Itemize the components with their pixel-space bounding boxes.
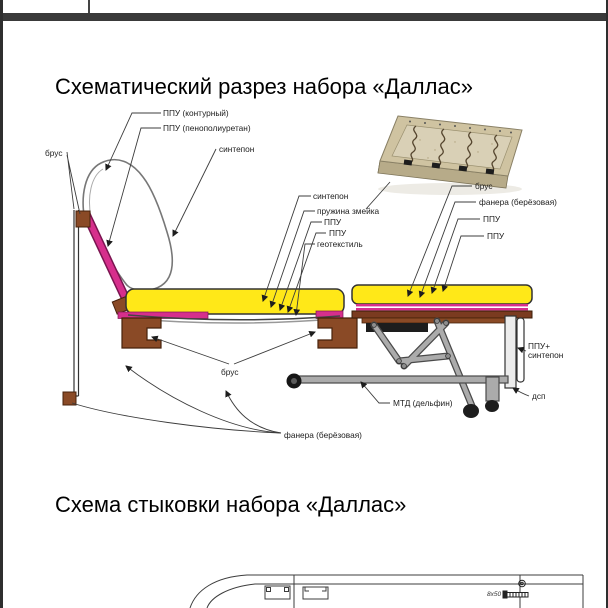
label-brus-top-left: брус — [45, 148, 62, 158]
leader-ppu-right-1 — [432, 219, 480, 293]
spring-frame-photo — [378, 116, 522, 195]
label-dsp: дсп — [532, 391, 545, 401]
leader-mtd — [361, 382, 390, 403]
joining-schema — [190, 575, 583, 608]
brus-block-panel-bottom — [63, 392, 76, 405]
label-brus-bottom: брус — [221, 367, 238, 377]
label-ppu-foam: ППУ (пенополиуретан) — [163, 123, 251, 133]
leader-fanera-arrow-2 — [126, 366, 281, 433]
leader-spring-to-photo — [366, 182, 390, 209]
screw-detail — [503, 580, 528, 598]
backrest-outline — [83, 160, 172, 290]
label-fanera-right: фанера (берёзовая) — [479, 197, 557, 207]
bracket-detail-2 — [303, 587, 328, 599]
label-ppu-right-2: ППУ — [487, 231, 505, 241]
leader-fanera-right — [420, 202, 476, 297]
leader-sintepon-top — [173, 149, 216, 236]
bracket-detail-1 — [265, 586, 290, 599]
label-brus-right: брус — [475, 181, 492, 191]
label-spring-snake: пружина змейка — [317, 206, 380, 216]
label-sintepon-mid: синтепон — [313, 191, 348, 201]
cutaway-diagram: ППУ (контурный) ППУ (пенополиуретан) син… — [0, 0, 608, 608]
mechanism-bottom-bar — [290, 376, 508, 383]
label-fanera-bottom: фанера (берёзовая) — [284, 430, 362, 440]
leader-brus-right — [408, 186, 472, 296]
label-sintepon-plus: синтепон — [528, 350, 563, 360]
seat-section — [118, 289, 357, 348]
label-mtd: МТД (дельфин) — [393, 398, 453, 408]
document-page: Схематический разрез набора «Даллас» Схе… — [0, 0, 608, 608]
leader-fanera-arrow-1 — [226, 391, 281, 433]
label-ppu-mid-1: ППУ — [324, 217, 342, 227]
label-ppu-right-1: ППУ — [483, 214, 501, 224]
label-screw-size: 8x50 — [487, 591, 501, 598]
leader-dsp — [513, 388, 529, 396]
label-geotextile: геотекстиль — [317, 239, 363, 249]
seat-foam — [126, 289, 344, 314]
label-sintepon-top: синтепон — [219, 144, 254, 154]
brus-block-board-top — [76, 211, 90, 227]
brus-bracket-left — [122, 318, 161, 348]
leader-brus-bottom-left — [152, 337, 229, 364]
brus-bracket-right — [318, 318, 357, 348]
label-ppu-mid-2: ППУ — [329, 228, 347, 238]
rear-foot — [486, 377, 499, 401]
rear-caster — [485, 400, 499, 412]
mechanism-links — [374, 321, 472, 406]
front-caster — [463, 404, 479, 418]
leader-brus-bottom-right — [234, 332, 315, 364]
leader-brus-top-left — [67, 152, 80, 214]
bed-foam — [352, 285, 532, 304]
label-ppu-contour: ППУ (контурный) — [163, 108, 229, 118]
armrest-panel — [63, 210, 79, 405]
